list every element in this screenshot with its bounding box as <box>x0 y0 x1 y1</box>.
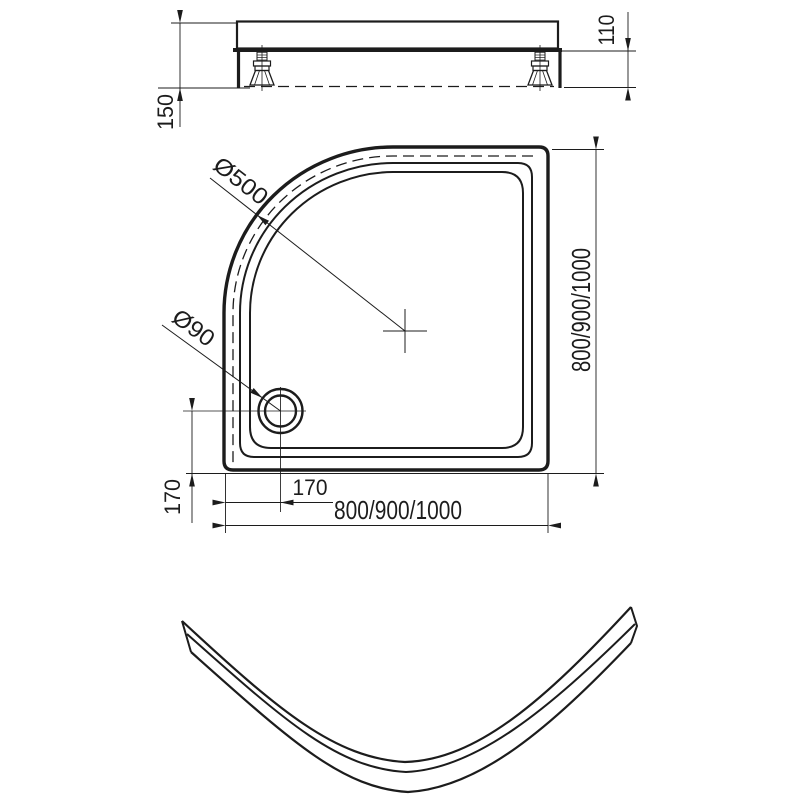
panel-bottom-edge <box>191 643 631 792</box>
panel-top-edge <box>182 607 631 762</box>
technical-drawing: 150 110 Ø5 <box>0 0 800 800</box>
dim-depth-label: 800/900/1000 <box>566 248 596 372</box>
corner-radius-callout: Ø500 <box>208 151 405 331</box>
dim-tray-height-label: 110 <box>594 14 619 45</box>
tray-side-profile <box>237 22 558 49</box>
drain-diameter-callout: Ø90 <box>162 303 281 411</box>
dim-drain-offset-horizontal-label: 170 <box>293 475 328 500</box>
dim-drain-offset-vertical-label: 170 <box>160 479 185 515</box>
plan-view: Ø500 Ø90 800/900/1000 170 170 <box>160 147 604 533</box>
dimension-depth: 800/900/1000 <box>552 150 604 474</box>
corner-radius-label: Ø500 <box>208 151 273 210</box>
drain-diameter-label: Ø90 <box>167 303 219 351</box>
dimension-tray-height: 110 <box>562 12 636 88</box>
dimension-width: 800/900/1000 <box>226 474 549 533</box>
dimension-total-height: 150 <box>153 23 250 130</box>
panel-middle-edge <box>187 624 635 772</box>
drain <box>183 387 306 512</box>
drawing-page: 150 110 Ø5 <box>0 0 800 800</box>
rim-inner-line <box>250 172 523 448</box>
rim-outer-line <box>240 163 532 457</box>
dimension-drain-offset-vertical: 170 <box>160 411 192 523</box>
dimension-drain-offset-horizontal: 170 <box>226 474 334 533</box>
side-elevation-view: 150 110 <box>153 12 636 130</box>
front-panel-view <box>182 607 637 792</box>
tray-outer-outline <box>224 147 548 470</box>
hidden-edge-dashed-line <box>233 156 533 467</box>
dim-width-label: 800/900/1000 <box>334 495 462 525</box>
drain-diameter-leader-line <box>162 325 281 411</box>
dim-total-height-label: 150 <box>153 94 178 130</box>
